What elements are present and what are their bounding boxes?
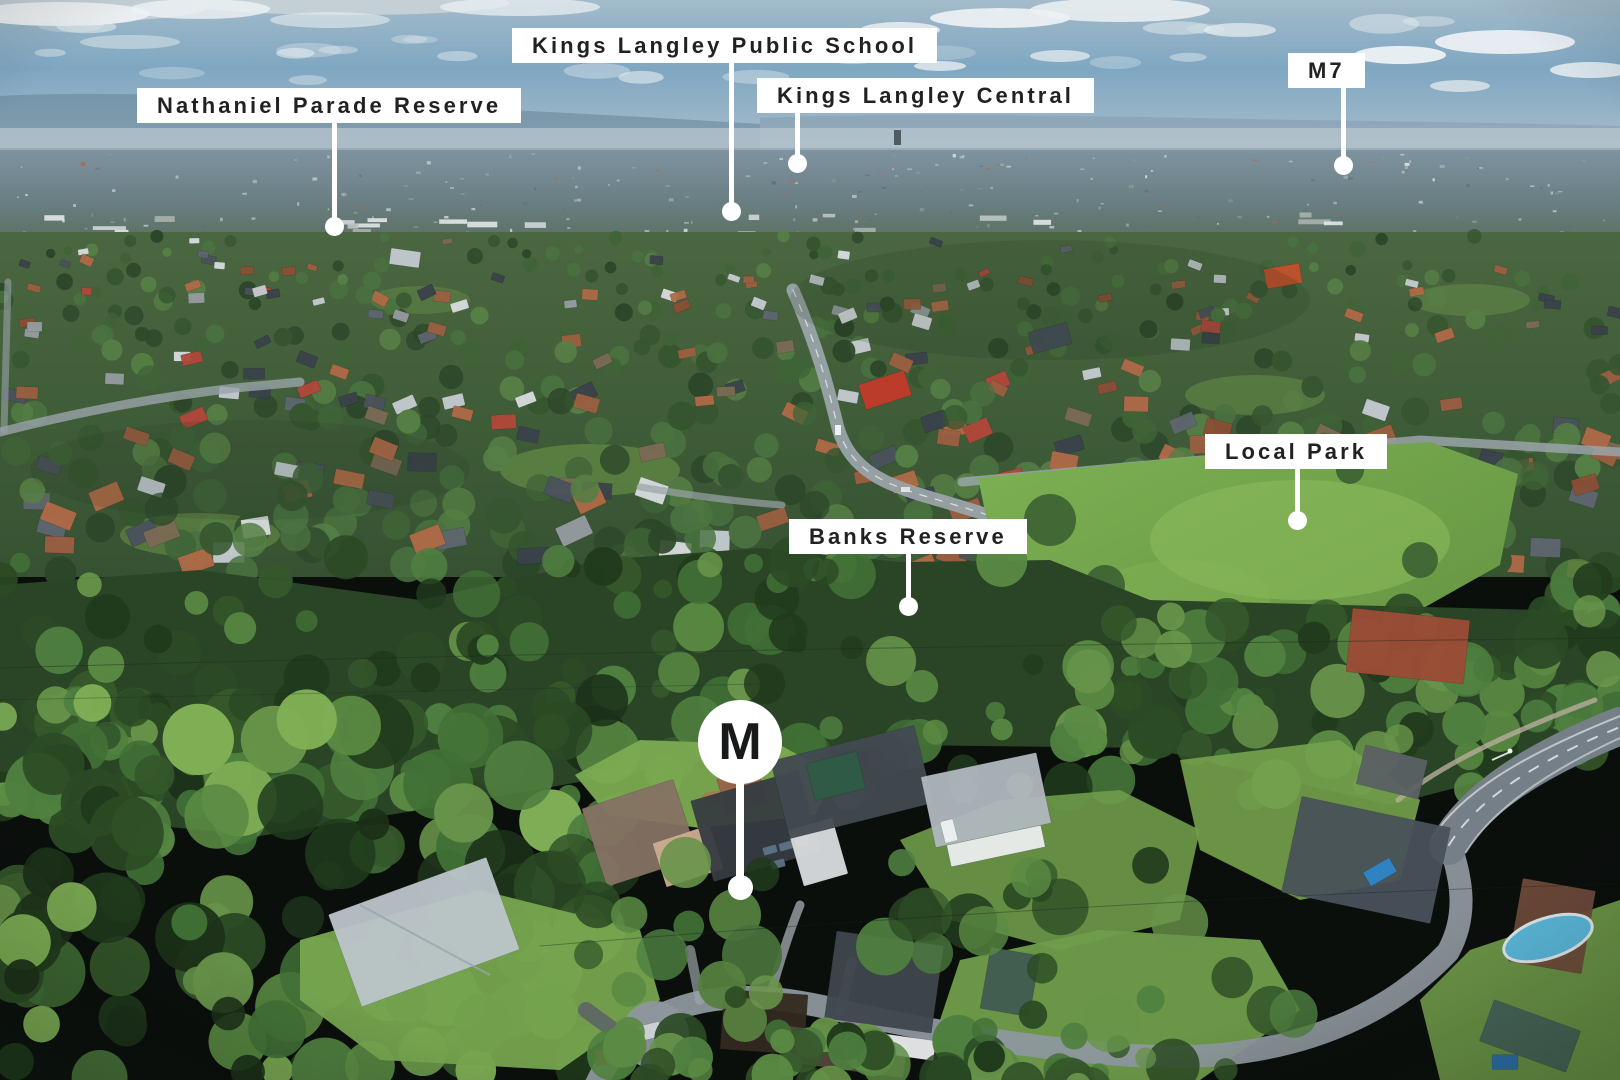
callout-leader-line <box>729 58 734 211</box>
callout-leader-dot <box>325 217 344 236</box>
callout-leader-dot <box>1334 156 1353 175</box>
callout-label: Local Park <box>1205 434 1387 469</box>
callout-label: Nathaniel Parade Reserve <box>137 88 521 123</box>
callout-label: Kings Langley Public School <box>512 28 937 63</box>
callout-label: Banks Reserve <box>789 519 1027 554</box>
property-marker-letter: M <box>718 712 761 772</box>
callout-leader-dot <box>722 202 741 221</box>
callout-leader-line <box>1341 83 1346 165</box>
property-marker-badge: M <box>698 700 782 784</box>
callout-layer: Kings Langley Public School Nathaniel Pa… <box>0 0 1620 1080</box>
callout-label: Kings Langley Central <box>757 78 1094 113</box>
callout-label: M7 <box>1288 53 1365 88</box>
property-marker-dot <box>728 875 753 900</box>
callout-leader-dot <box>899 597 918 616</box>
property-marker-stem <box>736 780 744 883</box>
aerial-photo-stage: Kings Langley Public School Nathaniel Pa… <box>0 0 1620 1080</box>
callout-leader-line <box>332 118 337 226</box>
callout-leader-dot <box>1288 511 1307 530</box>
callout-leader-dot <box>788 154 807 173</box>
